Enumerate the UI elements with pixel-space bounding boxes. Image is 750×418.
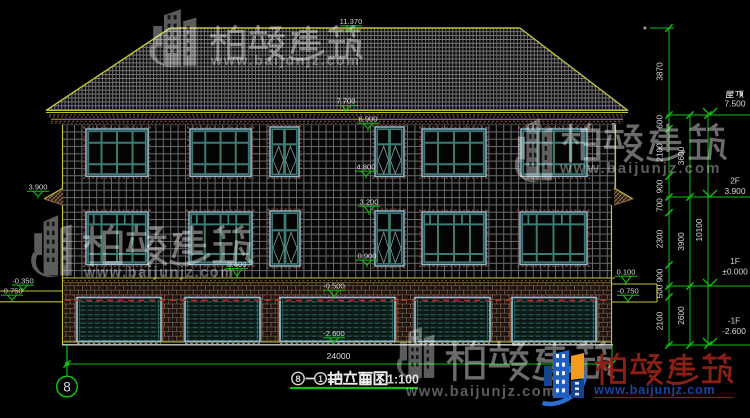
svg-text:-2.600: -2.600	[323, 329, 345, 338]
svg-text:2100: 2100	[655, 311, 665, 330]
svg-text:-2.600: -2.600	[722, 326, 746, 336]
svg-text:700: 700	[655, 198, 665, 212]
svg-text:-0.350: -0.350	[12, 276, 34, 285]
svg-text:500: 500	[655, 284, 665, 298]
svg-text:3.900: 3.900	[725, 186, 746, 196]
svg-text:6.900: 6.900	[358, 115, 377, 124]
svg-text:2600: 2600	[676, 306, 686, 325]
svg-text:3870: 3870	[655, 62, 665, 81]
svg-text:7.500: 7.500	[725, 99, 746, 109]
svg-text:2300: 2300	[655, 229, 665, 248]
svg-text:7.700: 7.700	[336, 97, 355, 106]
svg-text:3900: 3900	[676, 232, 686, 251]
svg-text:1F: 1F	[730, 257, 740, 266]
svg-text:±0.000: ±0.000	[722, 267, 748, 277]
svg-text:www.baijunjz.com: www.baijunjz.com	[559, 160, 721, 177]
svg-text:10100: 10100	[694, 218, 704, 241]
svg-text:-0.750: -0.750	[617, 287, 639, 296]
svg-text:0.100: 0.100	[616, 268, 635, 277]
svg-text:www.baijunjz.com: www.baijunjz.com	[210, 52, 361, 68]
svg-text:www.baijunjz.com: www.baijunjz.com	[593, 383, 716, 397]
svg-text:11.370: 11.370	[340, 17, 363, 26]
svg-text:8: 8	[63, 379, 71, 394]
svg-text:3.200: 3.200	[359, 198, 378, 207]
svg-text:0.900: 0.900	[357, 251, 376, 260]
svg-text:-0.500: -0.500	[323, 282, 345, 291]
svg-text:3.900: 3.900	[28, 183, 47, 192]
svg-text:2F: 2F	[730, 177, 740, 186]
svg-text:-1F: -1F	[728, 317, 740, 326]
svg-text:1: 1	[318, 374, 323, 384]
svg-text:600: 600	[655, 114, 665, 128]
svg-text:4.800: 4.800	[356, 162, 375, 171]
svg-text:24000: 24000	[327, 351, 351, 361]
svg-text:900: 900	[655, 179, 665, 193]
svg-text:www.baijunjz.com: www.baijunjz.com	[83, 265, 235, 281]
svg-text:900: 900	[655, 268, 665, 282]
svg-text:8: 8	[295, 374, 300, 385]
svg-text:www.baijunjz.com: www.baijunjz.com	[405, 384, 557, 400]
